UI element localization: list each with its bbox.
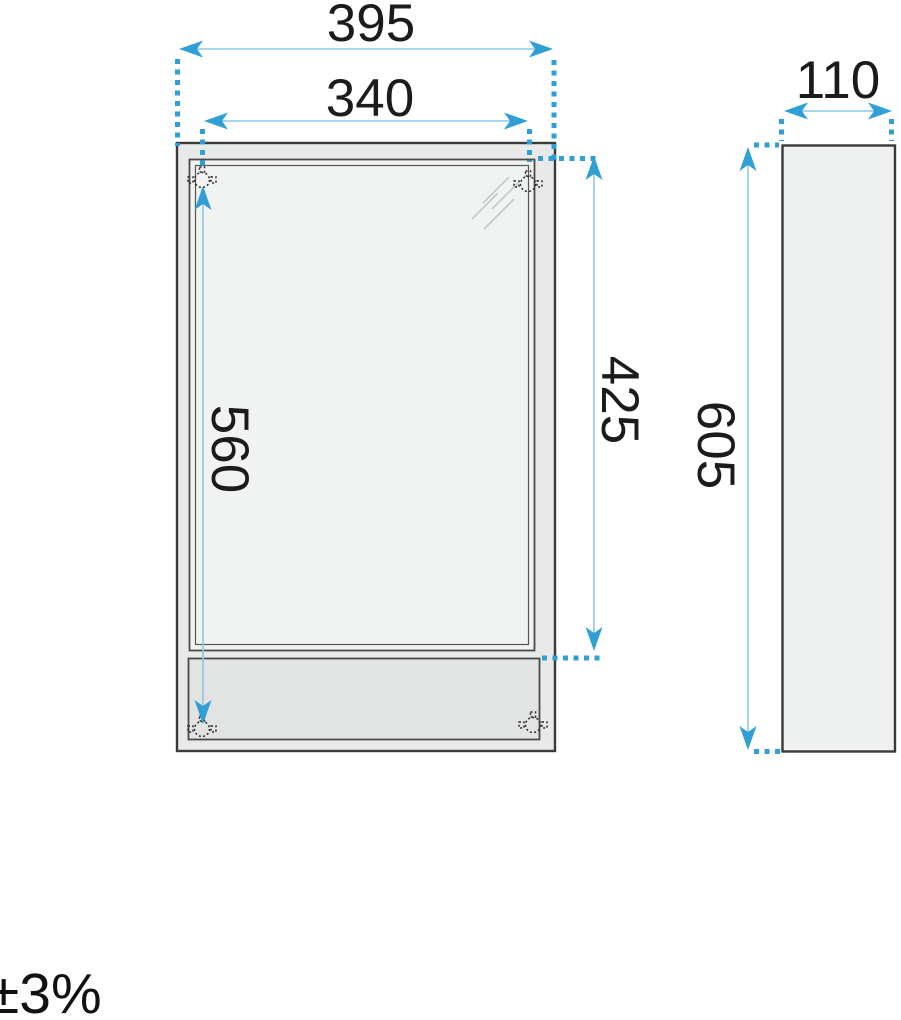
dim-side-height: 605	[686, 145, 782, 752]
dim-depth: 110	[782, 51, 893, 141]
dim-label-door-width: 340	[326, 69, 414, 128]
side-panel	[783, 146, 896, 752]
cabinet-bottom-panel	[189, 659, 540, 740]
side-view	[783, 146, 896, 752]
dim-label-depth: 110	[796, 51, 881, 110]
cabinet-dimension-drawing: 395 340 560 425 110	[0, 0, 901, 1020]
diagram-canvas: 395 340 560 425 110	[0, 0, 901, 1020]
tolerance-note: ±3%	[0, 962, 102, 1020]
dim-label-hole-spacing-height: 560	[200, 405, 259, 493]
dim-label-outer-width: 395	[327, 0, 415, 53]
dim-label-door-height: 425	[590, 356, 649, 444]
dim-label-side-height: 605	[686, 401, 745, 489]
